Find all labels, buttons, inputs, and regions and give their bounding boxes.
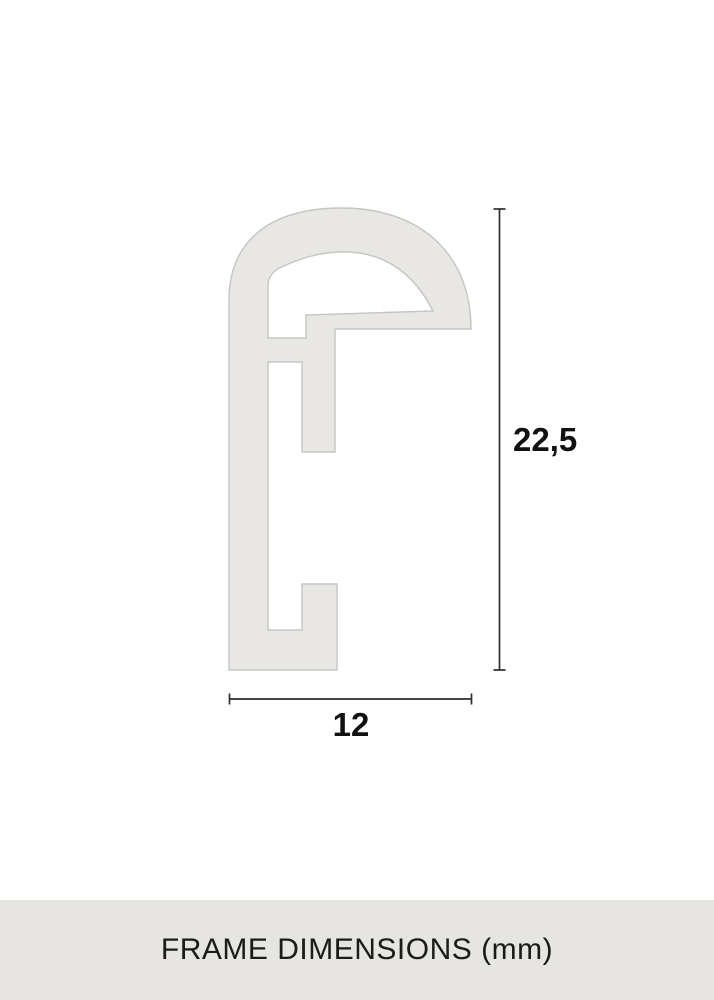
page: 22,5 12 FRAME DIMENSIONS (mm) [0, 0, 714, 1000]
footer-label: FRAME DIMENSIONS (mm) [161, 933, 553, 967]
frame-profile-diagram: 22,5 12 [0, 0, 714, 900]
frame-profile-shape [229, 208, 471, 670]
height-dimension-label: 22,5 [513, 421, 577, 458]
height-dimension-line [494, 209, 506, 670]
footer-bar: FRAME DIMENSIONS (mm) [0, 900, 714, 1000]
width-dimension-label: 12 [333, 706, 370, 743]
width-dimension-line [230, 694, 472, 705]
